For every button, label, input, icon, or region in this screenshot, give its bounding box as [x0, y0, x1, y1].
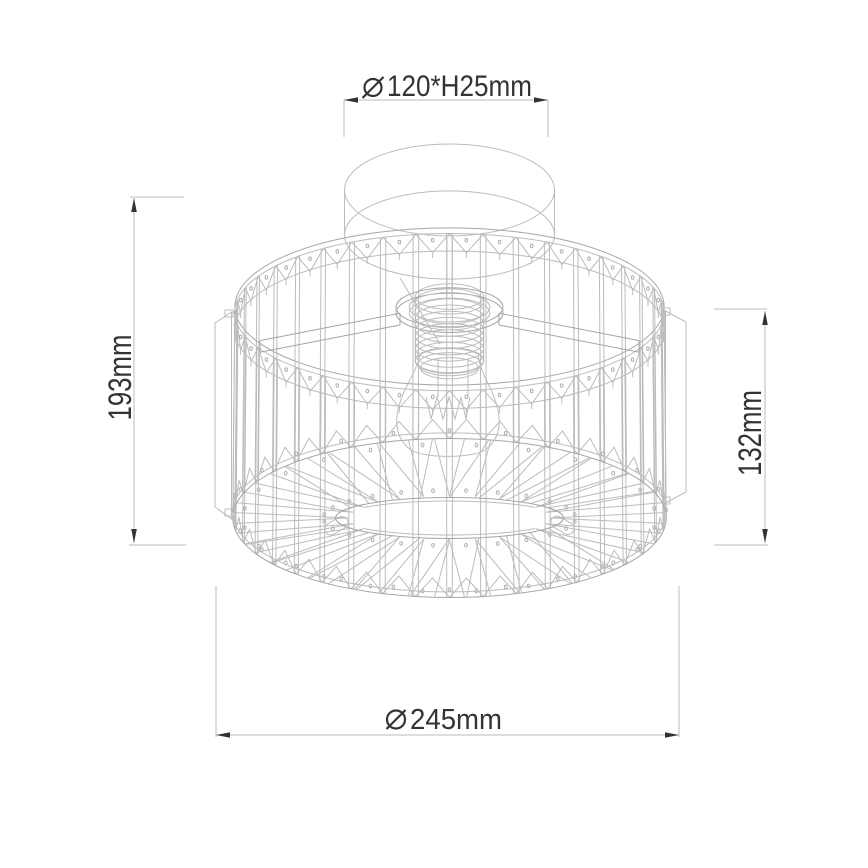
svg-text:132mm: 132mm — [732, 390, 768, 476]
svg-text:245mm: 245mm — [410, 704, 502, 736]
svg-text:120*H25mm: 120*H25mm — [387, 70, 532, 103]
svg-text:193mm: 193mm — [102, 335, 138, 421]
